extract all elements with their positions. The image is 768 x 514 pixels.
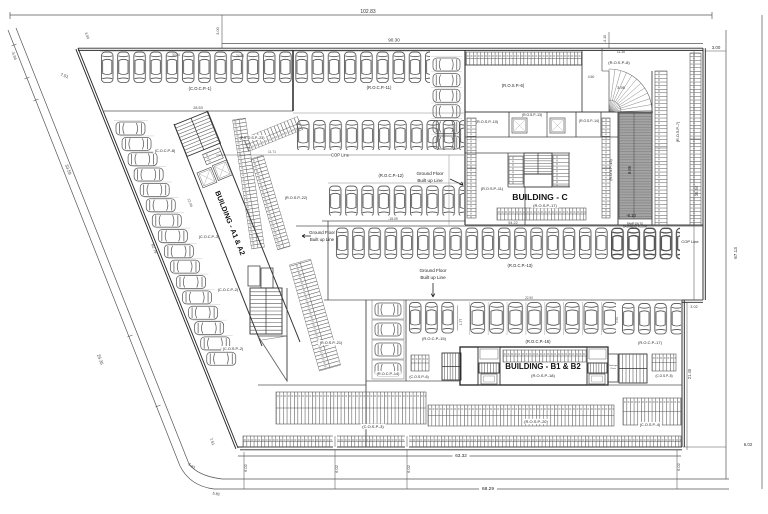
svg-text:63.32: 63.32 [455, 453, 467, 458]
svg-text:28.53: 28.53 [193, 106, 203, 110]
svg-text:-15.09: -15.09 [388, 217, 398, 221]
svg-text:5.50: 5.50 [615, 317, 619, 323]
svg-text:4.50: 4.50 [588, 75, 595, 79]
svg-text:Garbage: Garbage [609, 364, 618, 367]
svg-text:(C.O.C.P.-8): (C.O.C.P.-8) [155, 149, 176, 153]
svg-text:Built up Line: Built up Line [417, 178, 443, 183]
svg-text:8.86: 8.86 [627, 165, 632, 174]
svg-text:Ground Floor: Ground Floor [419, 268, 447, 273]
svg-text:(R.O.C.P.-16): (R.O.C.P.-16) [525, 339, 551, 344]
svg-text:(R.O.C.P.-13): (R.O.C.P.-13) [507, 263, 533, 268]
svg-text:21.45: 21.45 [687, 368, 692, 379]
svg-text:Chute: Chute [610, 367, 617, 370]
svg-text:6.02: 6.02 [406, 464, 411, 473]
svg-text:6.02: 6.02 [744, 442, 753, 447]
svg-text:(R.O.C.P.-14): (R.O.C.P.-14) [377, 372, 400, 376]
svg-text:(R.O.S.P.-10): (R.O.S.P.-10) [476, 120, 499, 124]
svg-text:90.30: 90.30 [388, 38, 400, 43]
svg-text:(R.O.S.P.-21): (R.O.S.P.-21) [320, 341, 343, 345]
svg-text:-6.10: -6.10 [626, 213, 636, 218]
svg-text:102.83: 102.83 [360, 9, 376, 15]
svg-text:3.00: 3.00 [712, 45, 721, 50]
svg-text:(C.O.S.P.-5): (C.O.S.P.-5) [655, 374, 672, 378]
svg-text:67.13: 67.13 [733, 247, 738, 259]
svg-text:(R.O.S.P.-22): (R.O.S.P.-22) [285, 196, 308, 200]
svg-text:1.77: 1.77 [459, 319, 463, 326]
svg-text:(R.O.C.P.-15): (R.O.C.P.-15) [422, 336, 447, 341]
svg-text:(C.O.C.P.-2): (C.O.C.P.-2) [218, 288, 239, 292]
svg-text:3.95: 3.95 [617, 85, 626, 90]
svg-text:COP Line: COP Line [681, 239, 699, 244]
svg-text:Built up Line: Built up Line [310, 237, 335, 242]
svg-text:BUILDING - C: BUILDING - C [512, 192, 567, 202]
svg-text:54.22: 54.22 [508, 221, 518, 225]
svg-text:(C.O.S.P.-3): (C.O.S.P.-3) [362, 424, 384, 429]
svg-text:11.30: 11.30 [617, 50, 625, 54]
svg-text:3.00: 3.00 [216, 27, 220, 34]
svg-text:(R.O.S.P.-6): (R.O.S.P.-6) [502, 83, 525, 88]
svg-text:22.90: 22.90 [525, 296, 533, 300]
svg-text:COP Line: COP Line [331, 153, 350, 158]
svg-text:(R.O.C.P.-11): (R.O.C.P.-11) [367, 85, 392, 90]
svg-text:(C.O.C.P.-1): (C.O.C.P.-1) [189, 86, 212, 91]
svg-text:(R.O.S.P.-7): (R.O.S.P.-7) [676, 121, 680, 142]
svg-text:(R.O.S.P.-15): (R.O.S.P.-15) [609, 159, 613, 180]
svg-text:-3.10: -3.10 [603, 35, 607, 43]
svg-text:(R.O.S.P.-8): (R.O.S.P.-8) [608, 60, 630, 65]
svg-text:(R.O.S.P.-13): (R.O.S.P.-13) [522, 113, 542, 117]
svg-text:3.02: 3.02 [690, 305, 697, 309]
svg-text:30.86: 30.86 [172, 53, 180, 57]
svg-text:(C.O.S.P.-4): (C.O.S.P.-4) [640, 423, 661, 427]
svg-text:Ground Floor: Ground Floor [416, 171, 444, 176]
svg-text:(R.O.S.P.-11): (R.O.S.P.-11) [481, 187, 504, 191]
svg-text:BUILDING - B1 & B2: BUILDING - B1 & B2 [505, 362, 581, 371]
svg-text:(R.O.S.P.-14): (R.O.S.P.-14) [579, 119, 599, 123]
svg-text:11.71: 11.71 [268, 150, 276, 154]
svg-text:Built up Line: Built up Line [420, 275, 446, 280]
svg-text:(R.O.C.P.-17): (R.O.C.P.-17) [638, 340, 663, 345]
svg-text:(C.O.S.P.-6): (C.O.S.P.-6) [409, 375, 428, 379]
svg-text:(R.O.S.P.-17): (R.O.S.P.-17) [533, 203, 557, 208]
svg-text:(R.O.S.P.-20): (R.O.S.P.-20) [524, 419, 548, 424]
svg-text:(R.O.S.P.-18): (R.O.S.P.-18) [531, 373, 555, 378]
svg-text:Ground Floor: Ground Floor [309, 230, 335, 235]
svg-text:(C.O.C.P.-3): (C.O.C.P.-3) [199, 235, 220, 239]
svg-text:6.02: 6.02 [334, 464, 339, 473]
svg-text:68.29: 68.29 [482, 486, 494, 492]
svg-text:(C.O.S.P.-2): (C.O.S.P.-2) [223, 347, 244, 351]
svg-text:(R.O.C.P.-12): (R.O.C.P.-12) [378, 173, 404, 178]
svg-text:24.38: 24.38 [236, 54, 244, 58]
